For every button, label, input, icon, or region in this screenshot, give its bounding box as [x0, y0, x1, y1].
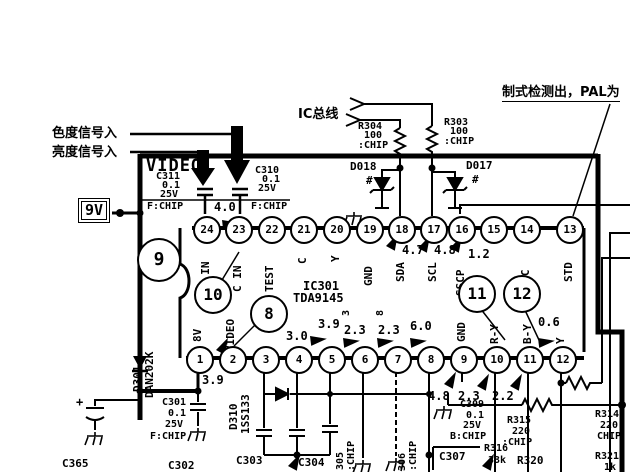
- schematic-page: 色度信号入 亮度信号入 IC总线 制式检测出，PAL为 VIDEO 9V C31…: [0, 0, 630, 472]
- wire-outer-rail: [112, 154, 622, 472]
- pin21-label: C: [297, 257, 308, 264]
- c306-pkg: :CHIP: [409, 441, 419, 471]
- diode-d310-symbol: [264, 372, 429, 400]
- c365-plus: +: [76, 396, 83, 408]
- callout-9: 9: [137, 238, 181, 282]
- c310-pkg: F:CHIP: [251, 202, 287, 212]
- resistor-r304-symbol: [395, 128, 405, 216]
- c303-ref: C303: [236, 455, 263, 466]
- pin1-label: 8V: [192, 329, 203, 342]
- pin7-voltage: 2.3: [378, 324, 400, 336]
- r314-value: 220: [600, 421, 618, 431]
- row-voltage-c: 2.2: [492, 390, 514, 402]
- pin-15: 15: [480, 216, 508, 244]
- d018-mark: #: [366, 175, 373, 186]
- pin2-voltage: 3.9: [202, 374, 224, 386]
- pin18-label: SDA: [395, 262, 406, 282]
- pin-2: 2: [219, 346, 247, 374]
- pin-21: 21: [290, 216, 318, 244]
- c302-ref: C302: [168, 460, 195, 471]
- c301-pkg: F:CHIP: [150, 432, 186, 442]
- pin20-label: Y: [330, 255, 341, 262]
- pin17-label: SCL: [427, 262, 438, 282]
- pin19-label: GND: [363, 266, 374, 286]
- pin-20: 20: [323, 216, 351, 244]
- cap-c302-symbol: [190, 391, 206, 426]
- row-voltage-a: 4.8: [428, 390, 450, 402]
- callout-8: 8: [250, 295, 288, 333]
- pin-19: 19: [356, 216, 384, 244]
- r303-pkg: :CHIP: [444, 137, 474, 147]
- pin6-voltage: 2.3: [344, 324, 366, 336]
- r314-ref: R314: [595, 410, 619, 420]
- c307-ref: C307: [439, 451, 466, 462]
- pin-3: 3: [252, 346, 280, 374]
- c309-ref: C309: [460, 400, 484, 410]
- d301-ref: D301: [132, 366, 143, 393]
- c304-ref: C304: [298, 457, 325, 468]
- supply-9v-badge: 9V: [78, 198, 110, 223]
- pin6-alt-voltage: 3: [342, 310, 352, 316]
- sscp-line: [460, 205, 630, 214]
- pin-22: 22: [258, 216, 286, 244]
- d017-ref: D017: [466, 160, 493, 171]
- luma-input-label: 亮度信号入: [52, 146, 117, 159]
- pin-7: 7: [384, 346, 412, 374]
- pin-5: 5: [318, 346, 346, 374]
- pin7-alt-voltage: 8: [376, 310, 386, 316]
- pin-9: 9: [450, 346, 478, 374]
- probe-marks: [213, 215, 554, 472]
- zener-d017-symbol: [432, 172, 467, 208]
- c309-pkg: B:CHIP: [450, 432, 486, 442]
- pin12-label: Y: [555, 337, 566, 344]
- c311-voltage: 25V: [160, 190, 178, 200]
- pin11-label: B-Y: [522, 324, 533, 344]
- c306-ref: 306: [398, 453, 408, 471]
- pin-24: 24: [193, 216, 221, 244]
- d017-mark: #: [472, 174, 479, 185]
- pin-4: 4: [285, 346, 313, 374]
- pin-23: 23: [225, 216, 253, 244]
- pin8-voltage: 6.0: [410, 320, 432, 332]
- junction-dots: [116, 165, 626, 459]
- r320-ref: R320: [517, 455, 544, 466]
- pin13-label: STD: [563, 262, 574, 282]
- pin-12: 12: [549, 346, 577, 374]
- r314-pkg: CHIP: [597, 432, 621, 442]
- callout-10: 10: [194, 276, 232, 314]
- pin17-voltage: 4.8: [434, 244, 456, 256]
- r321-value: 1k: [604, 463, 616, 472]
- callout-11: 11: [458, 275, 496, 313]
- pin-6: 6: [351, 346, 379, 374]
- std-detect-leader: [573, 104, 610, 216]
- r315-ref: R315: [507, 416, 531, 426]
- c305-pkg: :CHIP: [347, 441, 357, 471]
- pin-8: 8: [417, 346, 445, 374]
- cap-c365-symbol: [86, 400, 140, 430]
- pin5-voltage: 3.9: [318, 318, 340, 330]
- pin-1: 1: [186, 346, 214, 374]
- c309-voltage: 25V: [463, 421, 481, 431]
- callout-12: 12: [503, 275, 541, 313]
- r321-ref: R321: [595, 452, 619, 462]
- pin9-label: GND: [456, 322, 467, 342]
- c301-voltage: 25V: [165, 420, 183, 430]
- video-line-voltage: 4.0: [214, 201, 236, 213]
- pin23-label: C IN: [232, 266, 243, 293]
- d310-part: 1SS133: [240, 394, 251, 434]
- c305-ref: 305: [336, 452, 346, 470]
- ic-bus-label: IC总线: [298, 108, 338, 121]
- ic-part: TDA9145: [293, 292, 344, 304]
- c311-pkg: F:CHIP: [147, 202, 183, 212]
- cap-c311-symbol: [197, 189, 213, 214]
- pin-14: 14: [513, 216, 541, 244]
- d018-ref: D018: [350, 161, 377, 172]
- pin22-label: TEST: [264, 266, 275, 293]
- pin12-voltage: 0.6: [538, 316, 560, 328]
- zener-d018-symbol: [370, 170, 400, 208]
- d301-part: DAN202K: [144, 352, 155, 398]
- pin4-voltage: 3.0: [286, 330, 308, 342]
- pin-16: 16: [448, 216, 476, 244]
- chroma-input-label: 色度信号入: [52, 127, 117, 140]
- r316-value: 33k: [488, 456, 506, 466]
- r304-pkg: :CHIP: [358, 141, 388, 151]
- r315-value: 220: [512, 427, 530, 437]
- pin-17: 17: [420, 216, 448, 244]
- std-detect-label: 制式检测出，PAL为: [502, 86, 620, 102]
- c365-ref: C365: [62, 458, 89, 469]
- pin-11: 11: [516, 346, 544, 374]
- c301-value: 0.1: [168, 409, 186, 419]
- pin-10: 10: [483, 346, 511, 374]
- pin16-voltage: 1.2: [468, 248, 490, 260]
- r316-ref: R316: [484, 444, 508, 454]
- c301-ref: C301: [162, 398, 186, 408]
- pin-13: 13: [556, 216, 584, 244]
- pin10-label: R-Y: [489, 324, 500, 344]
- d310-ref: D310: [228, 404, 239, 431]
- pin-18: 18: [388, 216, 416, 244]
- pin18-voltage: 4.7: [402, 244, 424, 256]
- c310-voltage: 25V: [258, 184, 276, 194]
